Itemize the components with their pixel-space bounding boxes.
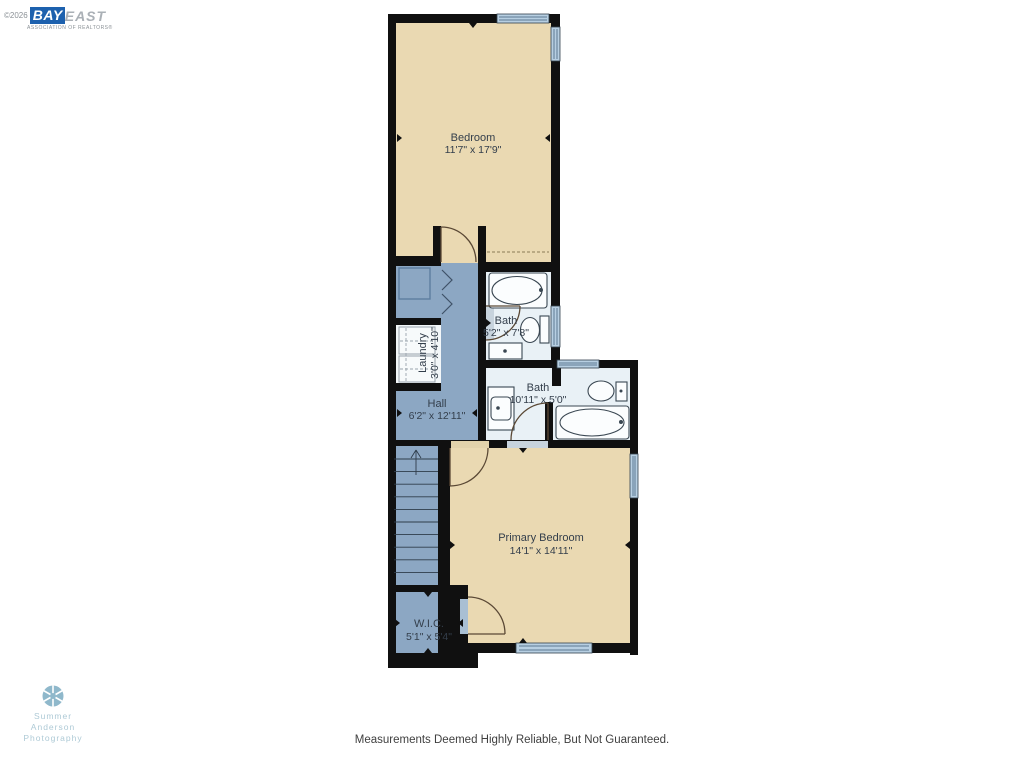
bedroom-label: Bedroom: [451, 132, 496, 144]
bath-lower-dims: 10'11" x 5'0": [510, 394, 567, 406]
room-closet: [394, 264, 441, 320]
photographer-line2: Anderson: [16, 722, 90, 733]
logo-east-text: EAST: [65, 8, 106, 24]
laundry-label: Laundry: [417, 333, 429, 373]
bath-upper-label: Bath: [495, 315, 518, 327]
primary-dims: 14'1" x 14'11": [510, 545, 573, 557]
bedroom-dims: 11'7" x 17'9": [445, 144, 502, 156]
primary-label: Primary Bedroom: [498, 532, 584, 544]
wic-label: W.I.C.: [414, 618, 444, 630]
hall-label: Hall: [428, 398, 447, 410]
bath-upper-dims: 5'2" x 7'8": [483, 327, 529, 339]
logo-bay-text: BAY: [30, 7, 65, 24]
wic-dims: 5'1" x 5'4": [406, 631, 452, 643]
copyright-text: ©2026: [4, 11, 28, 20]
toilet-icon: [588, 381, 614, 401]
toilet-icon: [540, 316, 549, 343]
bayeast-logo: ©2026 BAY EAST ASSOCIATION OF REALTORS®: [4, 7, 113, 31]
floor-plan: Bedroom 11'7" x 17'9" Bath 5'2" x 7'8" L…: [0, 0, 1024, 768]
floor-plan-page: Bedroom 11'7" x 17'9" Bath 5'2" x 7'8" L…: [0, 0, 1024, 768]
camera-aperture-icon: [41, 684, 65, 708]
disclaimer-text: Measurements Deemed Highly Reliable, But…: [0, 734, 1024, 746]
photographer-line1: Summer: [16, 711, 90, 722]
bath-lower-label: Bath: [527, 382, 550, 394]
hall-dims: 6'2" x 12'11": [409, 410, 466, 422]
logo-subtitle: ASSOCIATION OF REALTORS®: [27, 25, 113, 31]
laundry-dims: 3'0" x 4'10": [429, 327, 441, 379]
